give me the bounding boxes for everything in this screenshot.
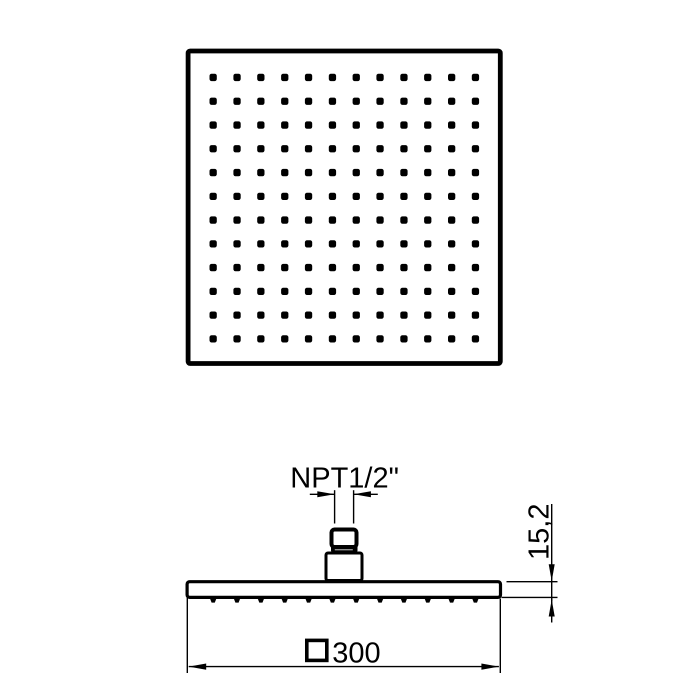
svg-text:300: 300	[332, 637, 380, 669]
svg-text:NPT1/2": NPT1/2"	[290, 463, 399, 495]
svg-text:15,2: 15,2	[523, 504, 555, 560]
